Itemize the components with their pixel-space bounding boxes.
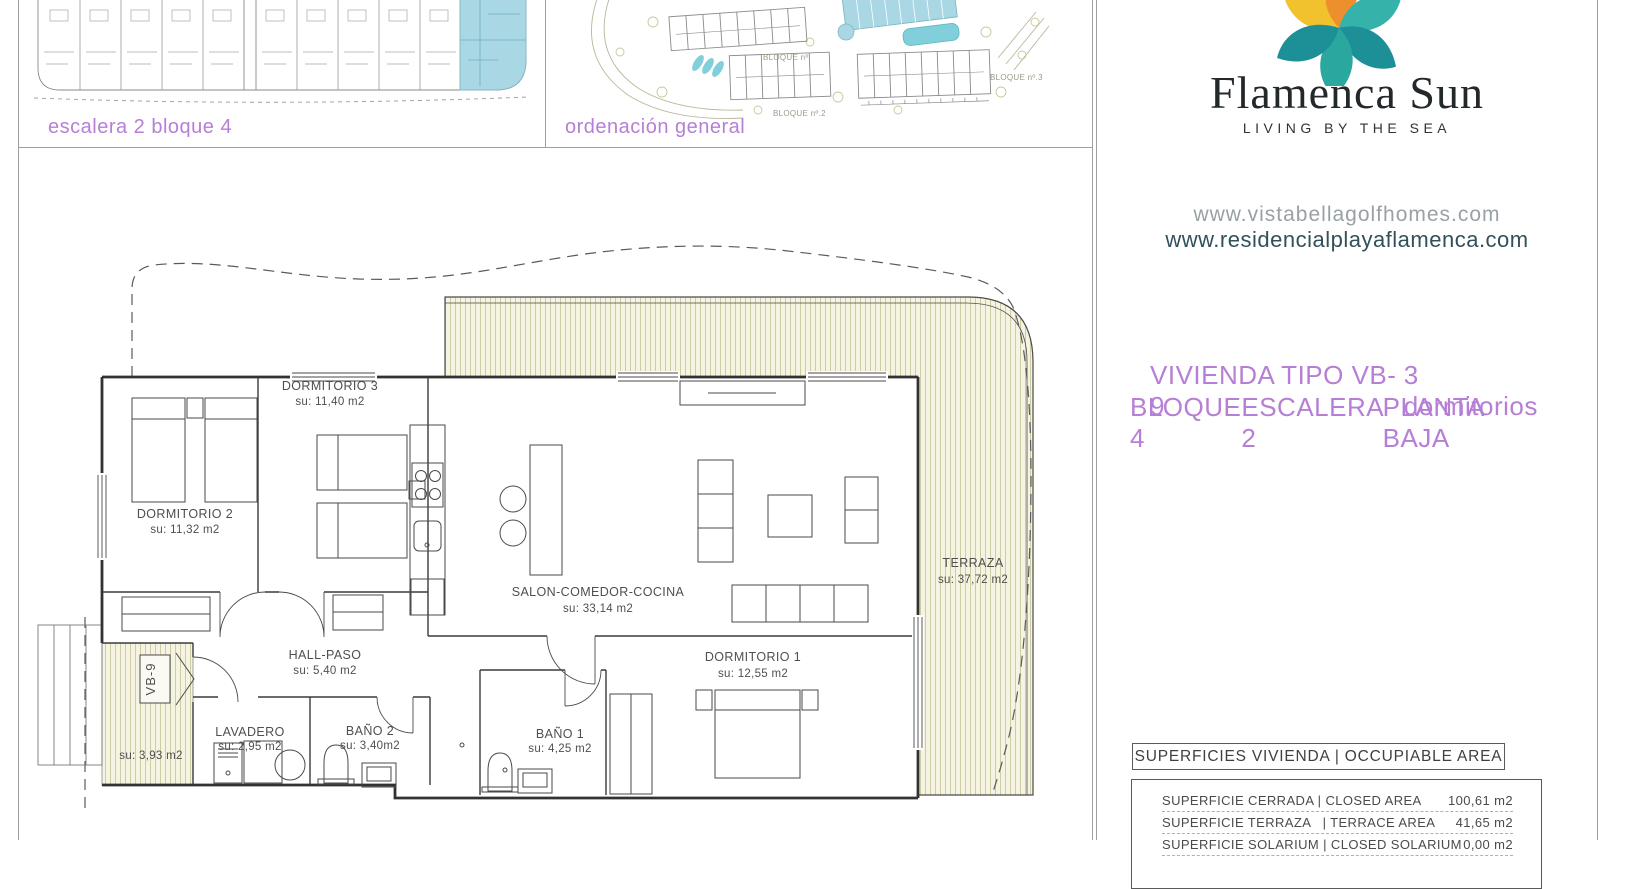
block-strip-outline [38,0,526,90]
thumbnail-block-plan-label: escalera 2 bloque 4 [48,116,232,139]
entry-steps [38,625,102,765]
room-dorm2-area: su: 11,32 m2 [150,524,219,536]
room-terraza-name: TERRAZA [942,556,1003,570]
closet-hall-b [333,595,383,630]
site-block1-label: BLOQUE nº [763,53,809,62]
floor-drain-a [460,743,464,747]
row-label: SUPERFICIE CERRADA | CLOSED AREA [1162,793,1422,808]
bed-dorm2-b [205,398,257,502]
laundry-basin [275,750,305,780]
table-row: SUPERFICIE SOLARIUM | CLOSED SOLARIUM 0,… [1162,834,1513,856]
site-building-a [669,7,807,50]
terrace-area [445,297,1033,795]
wardrobe-dorm1 [610,694,652,794]
bed-dorm1 [715,690,800,778]
bed-dorm3-b [317,503,407,558]
frame-thumb-divider [545,0,546,147]
site-block2-label: BLOQUE nº.2 [773,109,826,118]
sink-bath1 [518,769,552,793]
thumbnail-site-plan-label: ordenación general [565,116,745,139]
stool-b [500,520,526,546]
coffee-table [768,495,812,537]
row-value: 41,65 m2 [1456,815,1513,830]
row-value: 100,61 m2 [1448,793,1513,808]
ground-dashed-line [34,97,528,102]
door-arcs [193,592,601,733]
brochure-page: { "brand": { "name": "Flamenca Sun", "ta… [0,0,1638,840]
frame-right-line [1597,0,1598,840]
tv-cabinet [680,381,805,405]
site-trees [616,17,1039,114]
dining-bench [732,585,868,622]
table-row: SUPERFICIE CERRADA | CLOSED AREA 100,61 … [1162,790,1513,812]
bed-dorm2-a [132,398,185,502]
room-bath1-area: su: 4,25 m2 [528,743,591,755]
room-bath1-name: BAÑO 1 [536,727,584,741]
areas-table-title: SUPERFICIES VIVIENDA | OCCUPIABLE AREA [1132,743,1505,770]
row-label: SUPERFICIE SOLARIUM | CLOSED SOLARIUM [1162,837,1462,852]
row-value: 0,00 m2 [1463,837,1513,852]
room-hall-area: su: 5,40 m2 [293,665,356,677]
room-hall-name: HALL-PASO [289,648,362,662]
room-dorm3-area: su: 11,40 m2 [295,396,364,408]
site-block3-label: BLOQUE nº.3 [990,73,1043,82]
unit-block: BLOQUE 4 [1130,392,1241,454]
sofa-large [698,460,733,562]
room-dorm1-area: su: 12,55 m2 [718,668,788,680]
site-pool [690,23,960,79]
room-labels: DORMITORIO 3 su: 11,40 m2 DORMITORIO 2 s… [119,379,1008,762]
room-lavadero-name: LAVADERO [215,725,284,739]
room-bath2-area: su: 3,40m2 [340,740,400,752]
entry-area-label: su: 3,93 m2 [119,750,182,762]
nightstand-dorm2 [187,398,203,418]
areas-table-rows: SUPERFICIE CERRADA | CLOSED AREA 100,61 … [1132,790,1541,856]
stool-a [500,486,526,512]
room-terraza-area: su: 37,72 m2 [938,574,1008,586]
room-lavadero-area: su: 2,95 m2 [218,741,281,753]
nightstand-dorm1-a [696,690,712,710]
unit-floor: PLANTA BAJA [1383,392,1518,454]
floor-drain-b [503,768,507,772]
nightstand-dorm1-b [802,690,818,710]
floor-plan: VB-9 DORMITORIO 3 su: 11,40 m2 DORMITORI… [18,147,1093,840]
room-dorm3-name: DORMITORIO 3 [282,379,378,393]
row-label: SUPERFICIE TERRAZA | TERRACE AREA [1162,815,1435,830]
room-dorm1-name: DORMITORIO 1 [705,650,801,664]
closet-hall-a [122,597,210,631]
kitchen-island [530,445,562,575]
highlighted-unit [460,0,526,90]
toilet-bath1 [482,753,518,792]
brand-tagline: LIVING BY THE SEA [1097,120,1597,136]
website-primary-link[interactable]: www.vistabellagolfhomes.com [1097,203,1597,227]
room-salon-name: SALON-COMEDOR-COCINA [512,585,685,599]
unit-tag-label: VB-9 [143,663,158,696]
unit-interiors [44,10,456,64]
bed-dorm3-a [317,435,407,490]
unit-stair: ESCALERA 2 [1241,392,1382,454]
website-secondary-link[interactable]: www.residencialplayaflamenca.com [1097,227,1597,253]
areas-table: SUPERFICIE CERRADA | CLOSED AREA 100,61 … [1131,779,1542,889]
room-bath2-name: BAÑO 2 [346,724,394,738]
site-building-d [857,50,991,106]
sink-bath2 [362,763,396,787]
room-dorm2-name: DORMITORIO 2 [137,507,233,521]
room-salon-area: su: 33,14 m2 [563,603,633,615]
sofa-small [845,477,878,543]
brand-name: Flamenca Sun [1097,66,1597,119]
table-row: SUPERFICIE TERRAZA | TERRACE AREA 41,65 … [1162,812,1513,834]
unit-headline-row2: BLOQUE 4 ESCALERA 2 PLANTA BAJA [1130,392,1518,454]
